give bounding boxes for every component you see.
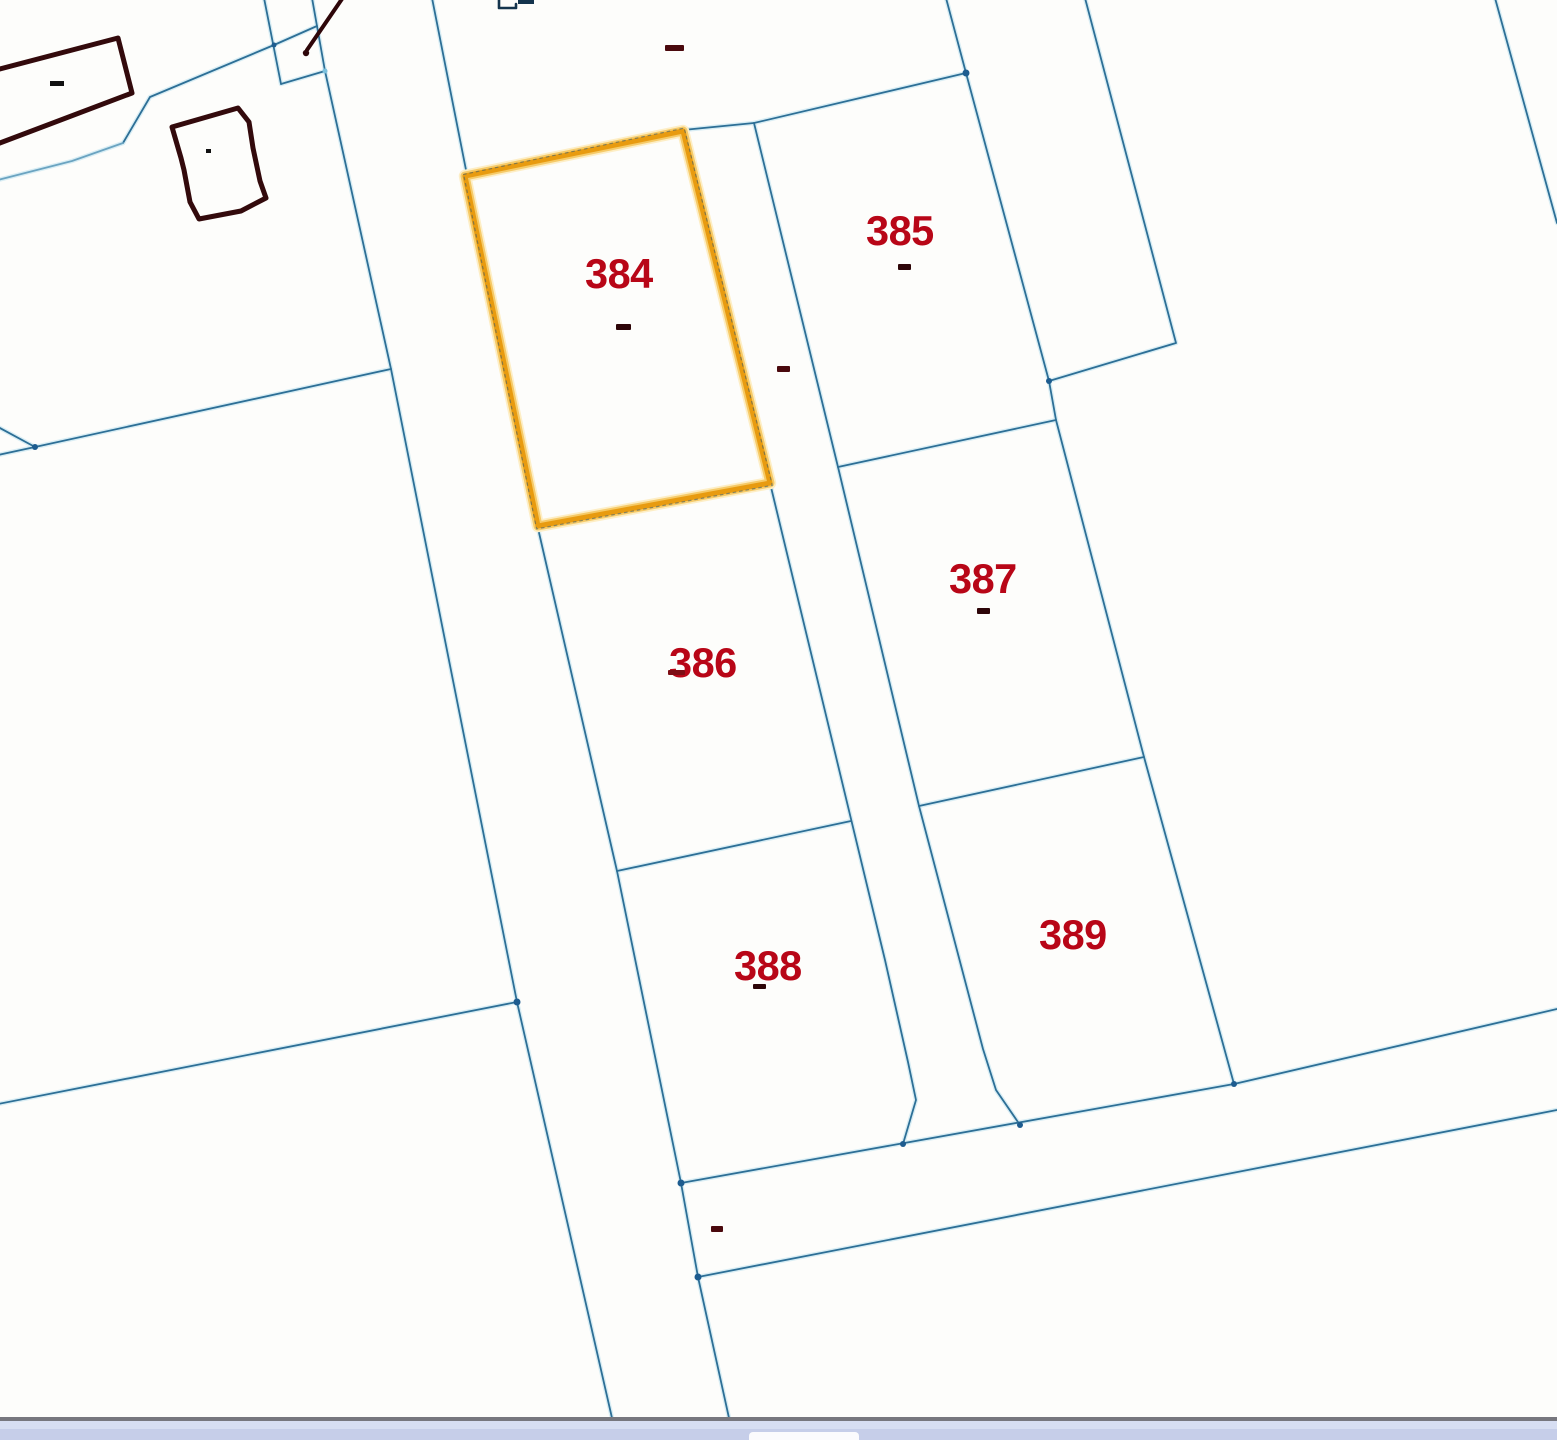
svg-text:384: 384	[585, 250, 653, 297]
svg-text:389: 389	[1039, 911, 1107, 958]
svg-text:385: 385	[866, 207, 934, 254]
svg-text:388: 388	[734, 942, 802, 989]
svg-text:386: 386	[669, 639, 737, 686]
svg-text:387: 387	[949, 555, 1017, 602]
